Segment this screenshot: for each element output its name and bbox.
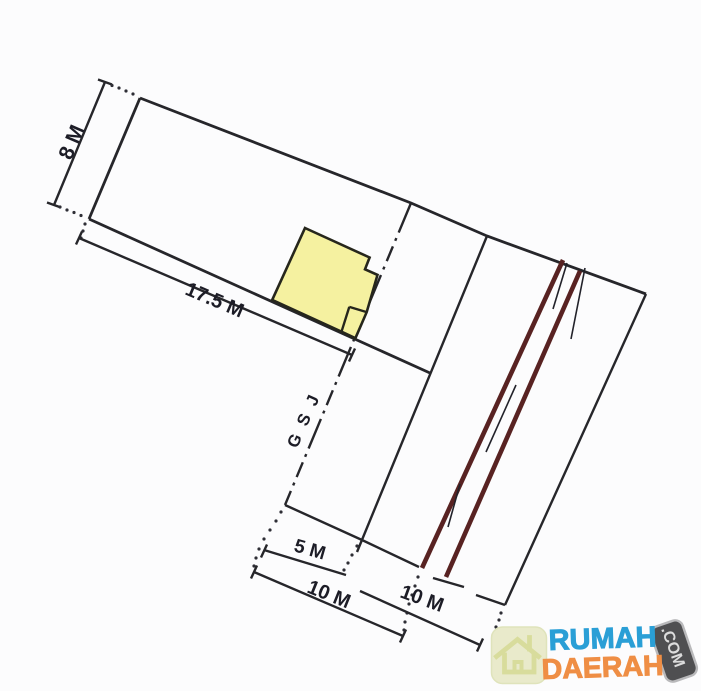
svg-text:DAERAH: DAERAH: [541, 650, 664, 686]
